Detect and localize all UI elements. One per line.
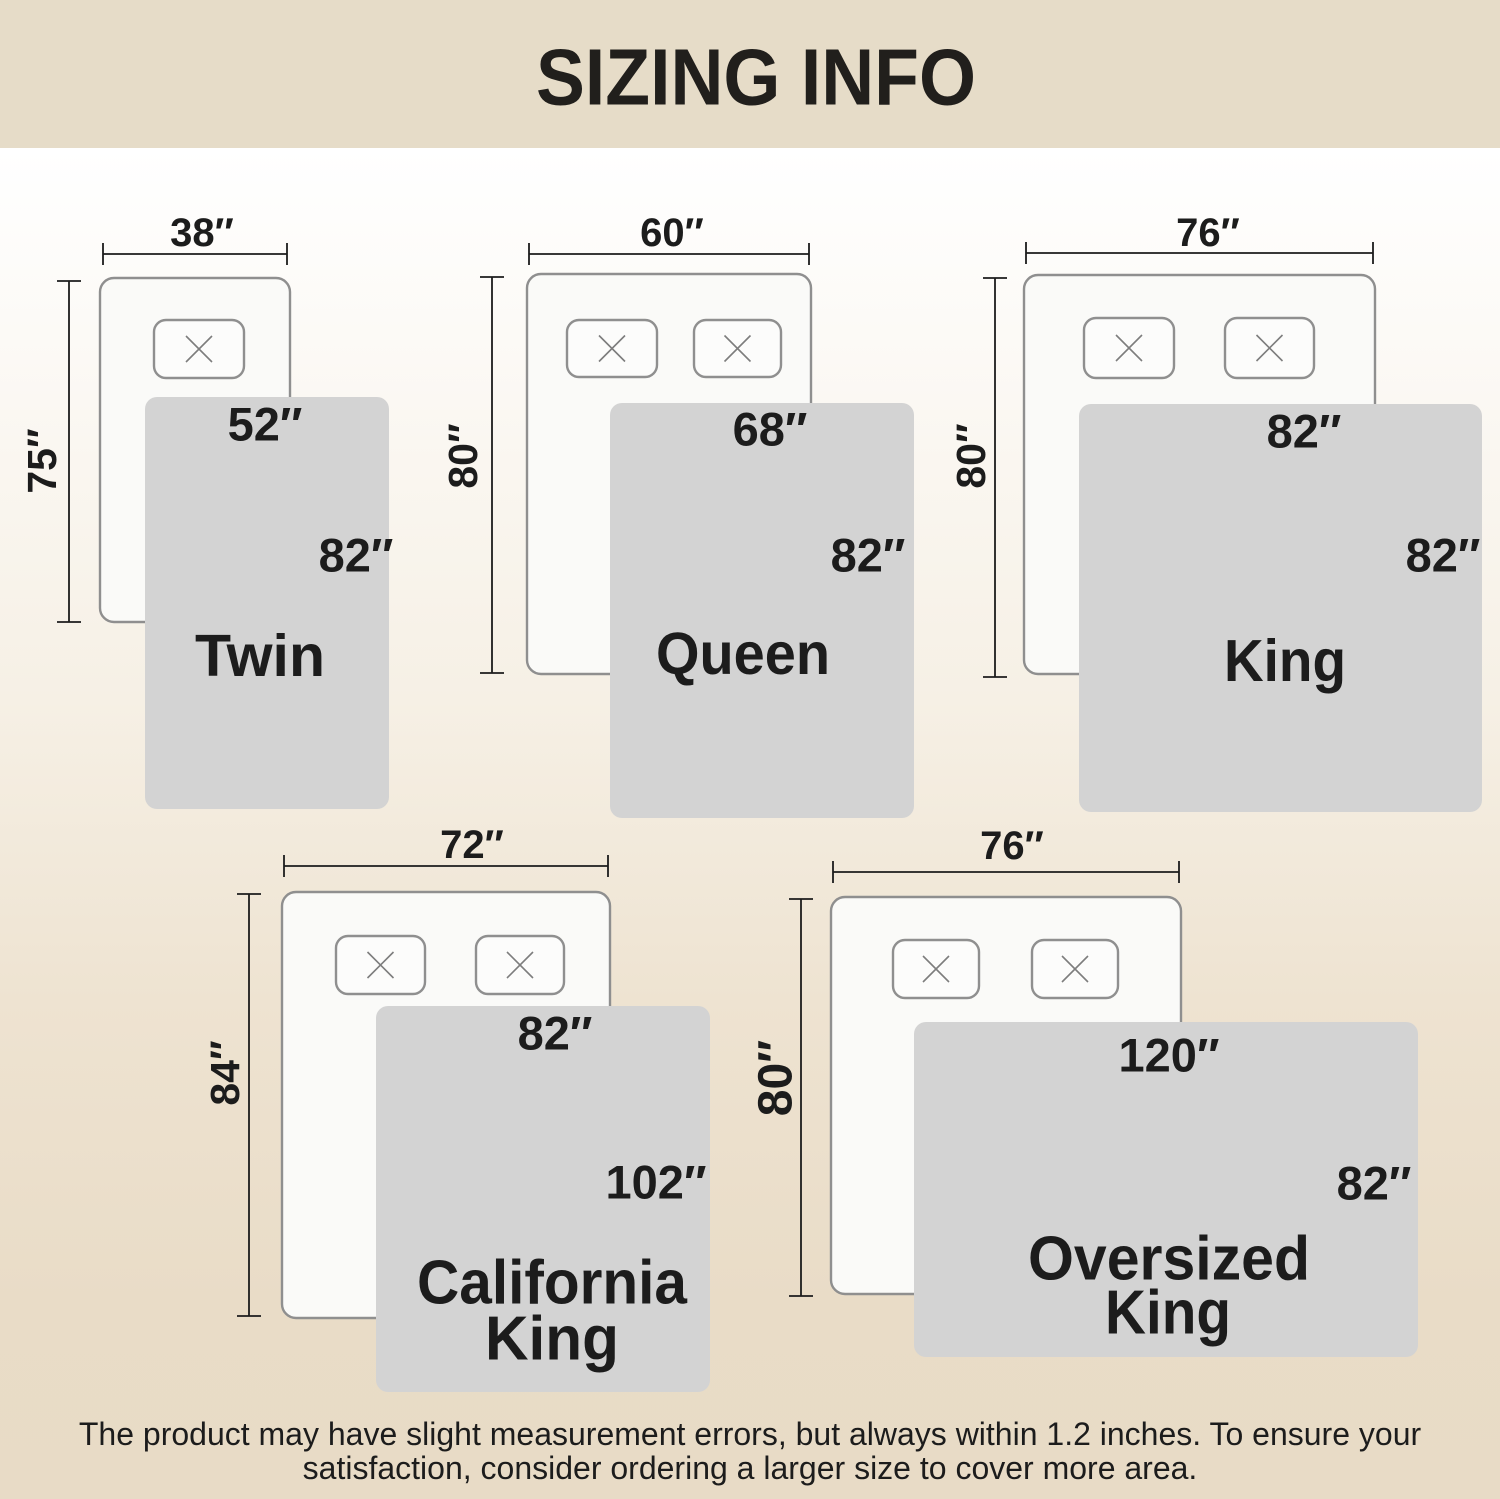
svg-text:120″: 120″	[1119, 1029, 1220, 1082]
svg-text:38″: 38″	[170, 211, 234, 255]
svg-text:75″: 75″	[19, 428, 65, 493]
svg-text:SIZING INFO: SIZING INFO	[536, 33, 976, 122]
svg-text:72″: 72″	[440, 823, 504, 867]
svg-text:80″: 80″	[948, 423, 994, 488]
svg-text:King: King	[485, 1305, 619, 1374]
svg-text:Queen: Queen	[656, 621, 830, 687]
svg-text:80″: 80″	[440, 423, 486, 488]
svg-text:King: King	[1105, 1279, 1231, 1348]
svg-text:82″: 82″	[1406, 529, 1481, 582]
svg-text:76″: 76″	[1176, 211, 1240, 255]
svg-text:84″: 84″	[202, 1040, 248, 1105]
svg-text:82″: 82″	[1267, 405, 1342, 458]
svg-text:80″: 80″	[750, 1040, 803, 1116]
svg-text:102″: 102″	[606, 1156, 707, 1209]
svg-text:82″: 82″	[831, 529, 906, 582]
svg-text:82″: 82″	[1337, 1157, 1412, 1210]
svg-text:60″: 60″	[640, 211, 704, 255]
svg-text:satisfaction, consider orderin: satisfaction, consider ordering a larger…	[303, 1450, 1198, 1486]
svg-text:52″: 52″	[228, 398, 303, 451]
svg-text:The product may have slight me: The product may have slight measurement …	[79, 1416, 1422, 1452]
svg-text:Twin: Twin	[195, 623, 325, 689]
svg-text:82″: 82″	[319, 529, 394, 582]
svg-text:King: King	[1224, 628, 1346, 694]
svg-text:82″: 82″	[518, 1007, 593, 1060]
svg-text:76″: 76″	[980, 824, 1044, 868]
svg-text:68″: 68″	[733, 403, 808, 456]
